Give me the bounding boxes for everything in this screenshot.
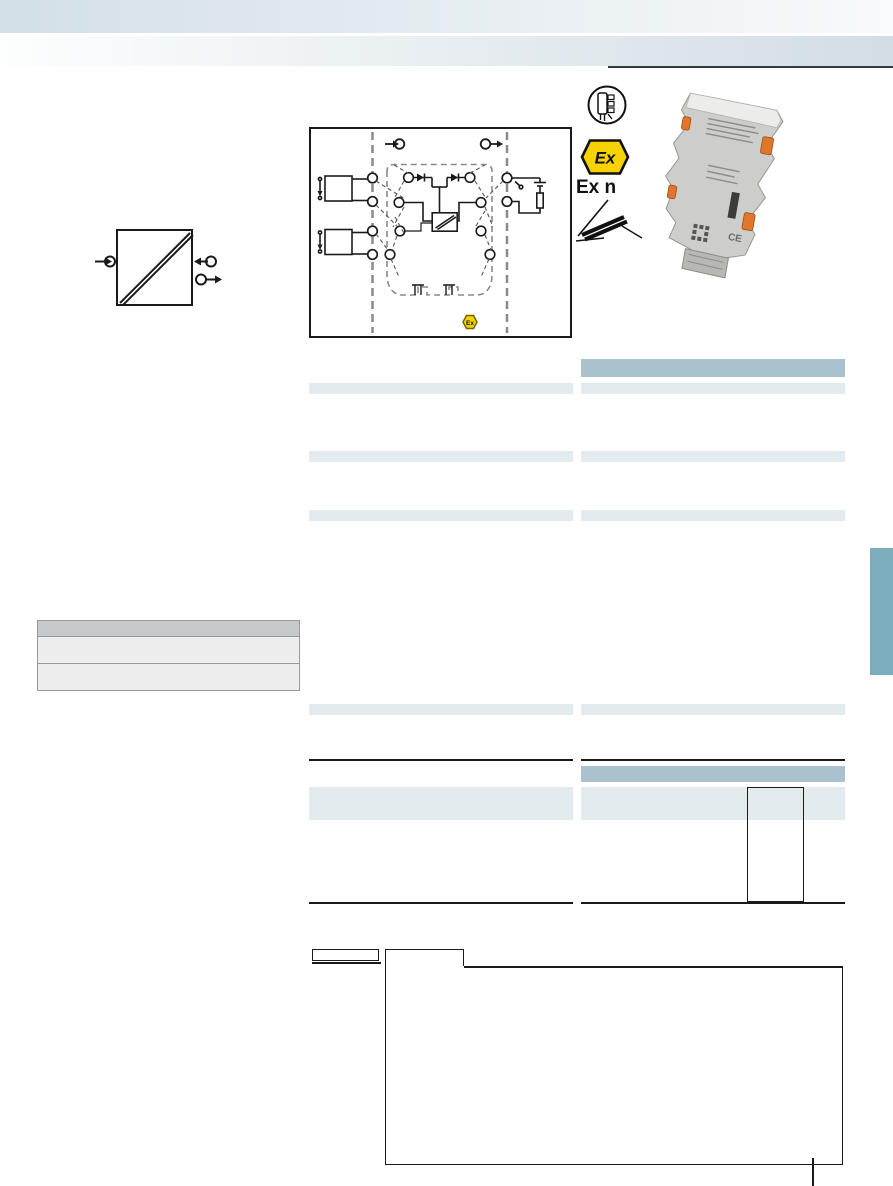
output-load xyxy=(512,178,546,213)
svg-text:Ex: Ex xyxy=(595,149,617,168)
atex-ex-logo: Ex xyxy=(579,137,631,177)
ordering-table-row xyxy=(38,637,299,664)
header-band-top xyxy=(0,0,893,33)
spec-row-highlight xyxy=(309,451,573,462)
section-rule xyxy=(581,759,845,761)
inner-circuit xyxy=(385,173,495,260)
datasheet-page: Ex Ex Ex n xyxy=(0,0,893,1186)
spec-row-highlight xyxy=(309,704,573,715)
diagram-output-icon xyxy=(481,139,503,149)
transmitter-2 xyxy=(318,230,369,255)
spec-row-highlight-tall xyxy=(309,787,573,820)
spec-section-header xyxy=(581,359,845,377)
diagram-input-icon xyxy=(385,139,404,149)
svg-text:Ex: Ex xyxy=(466,320,474,327)
chapter-side-tab xyxy=(870,548,893,675)
output-sink-icon xyxy=(194,257,216,267)
ordering-table-row xyxy=(38,664,299,690)
product-photo: CE xyxy=(645,78,800,293)
push-in-connector-icon xyxy=(585,84,629,128)
function-symbol xyxy=(93,224,225,312)
block-diagram-frame xyxy=(310,128,571,337)
header-rule xyxy=(608,66,893,68)
transmitter-1 xyxy=(318,176,369,201)
note-label-underline xyxy=(312,962,381,964)
push-in-lever-left-top xyxy=(681,116,691,130)
ordering-table xyxy=(37,620,300,691)
diagram-ex-badge: Ex xyxy=(463,316,477,329)
spec-row-highlight xyxy=(581,451,845,462)
connector-figure-box xyxy=(747,787,804,902)
push-in-lever-left-bottom xyxy=(667,185,677,199)
footer-divider xyxy=(812,1158,814,1186)
spec-row-highlight-tall xyxy=(581,787,845,820)
spec-row-highlight xyxy=(309,510,573,521)
note-tab-box xyxy=(385,949,464,966)
spec-section-header xyxy=(581,766,845,782)
din-rail-mount-icon xyxy=(570,198,646,244)
input-signal-icon xyxy=(95,257,115,267)
spec-row-highlight xyxy=(581,510,845,521)
spec-row-highlight xyxy=(309,383,573,394)
section-rule xyxy=(309,902,573,904)
note-label-box xyxy=(312,949,379,961)
output-source-icon xyxy=(196,275,222,285)
note-body-box-topline xyxy=(464,966,843,968)
ex-n-marking: Ex n xyxy=(576,177,646,199)
note-body-box xyxy=(385,966,843,1165)
block-diagram: Ex xyxy=(309,127,572,338)
header-band-bottom xyxy=(0,36,893,66)
section-rule xyxy=(309,759,573,761)
push-in-lever-right-top xyxy=(760,136,774,155)
spec-row-highlight xyxy=(581,383,845,394)
push-in-lever-right-bottom xyxy=(742,212,756,231)
section-rule xyxy=(581,902,845,904)
ordering-table-header xyxy=(38,621,299,637)
spec-row-highlight xyxy=(581,704,845,715)
